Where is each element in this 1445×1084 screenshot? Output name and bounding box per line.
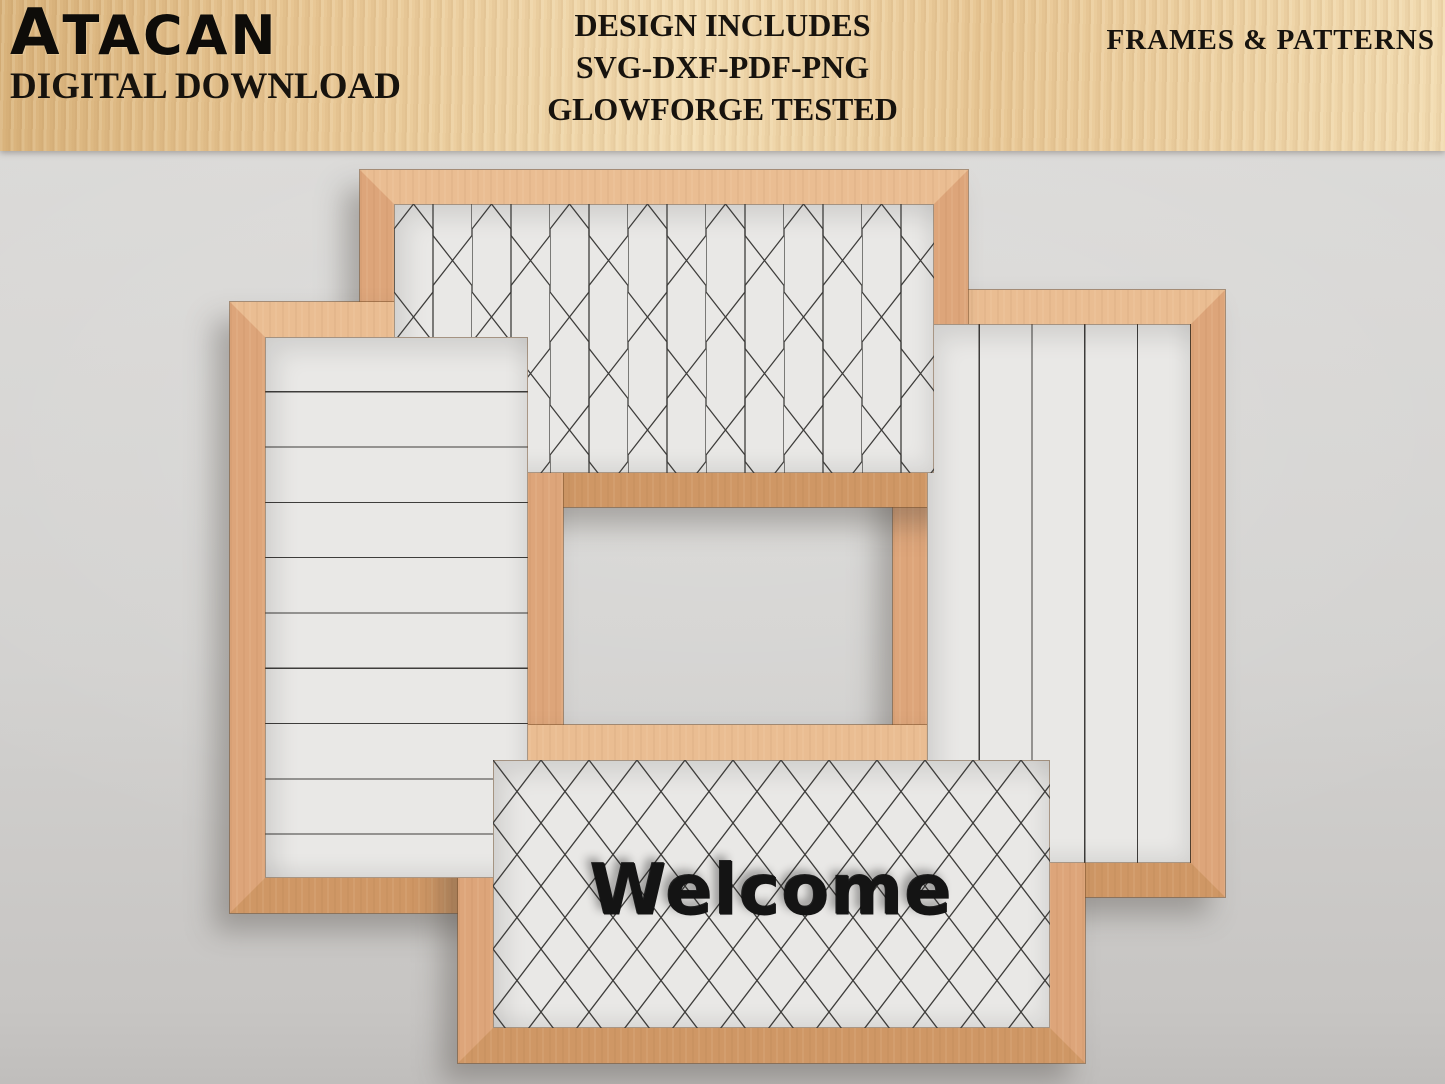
welcome-frame: Welcome: [458, 725, 1085, 1063]
shiplap-panel: [265, 337, 528, 878]
top-wood-banner: ATACAN DIGITAL DOWNLOAD DESIGN INCLUDES …: [0, 0, 1445, 151]
welcome-panel: Welcome: [493, 760, 1050, 1028]
gray-backdrop: Welcome: [0, 151, 1445, 1084]
banner-center-text: DESIGN INCLUDES SVG-DXF-PDF-PNG GLOWFORG…: [0, 4, 1445, 130]
banner-right-label: FRAMES & PATTERNS: [1107, 24, 1436, 57]
banner-line-glowforge-tested: GLOWFORGE TESTED: [0, 88, 1445, 130]
welcome-text: Welcome: [493, 850, 1050, 932]
product-image: ATACAN DIGITAL DOWNLOAD DESIGN INCLUDES …: [0, 0, 1445, 1084]
